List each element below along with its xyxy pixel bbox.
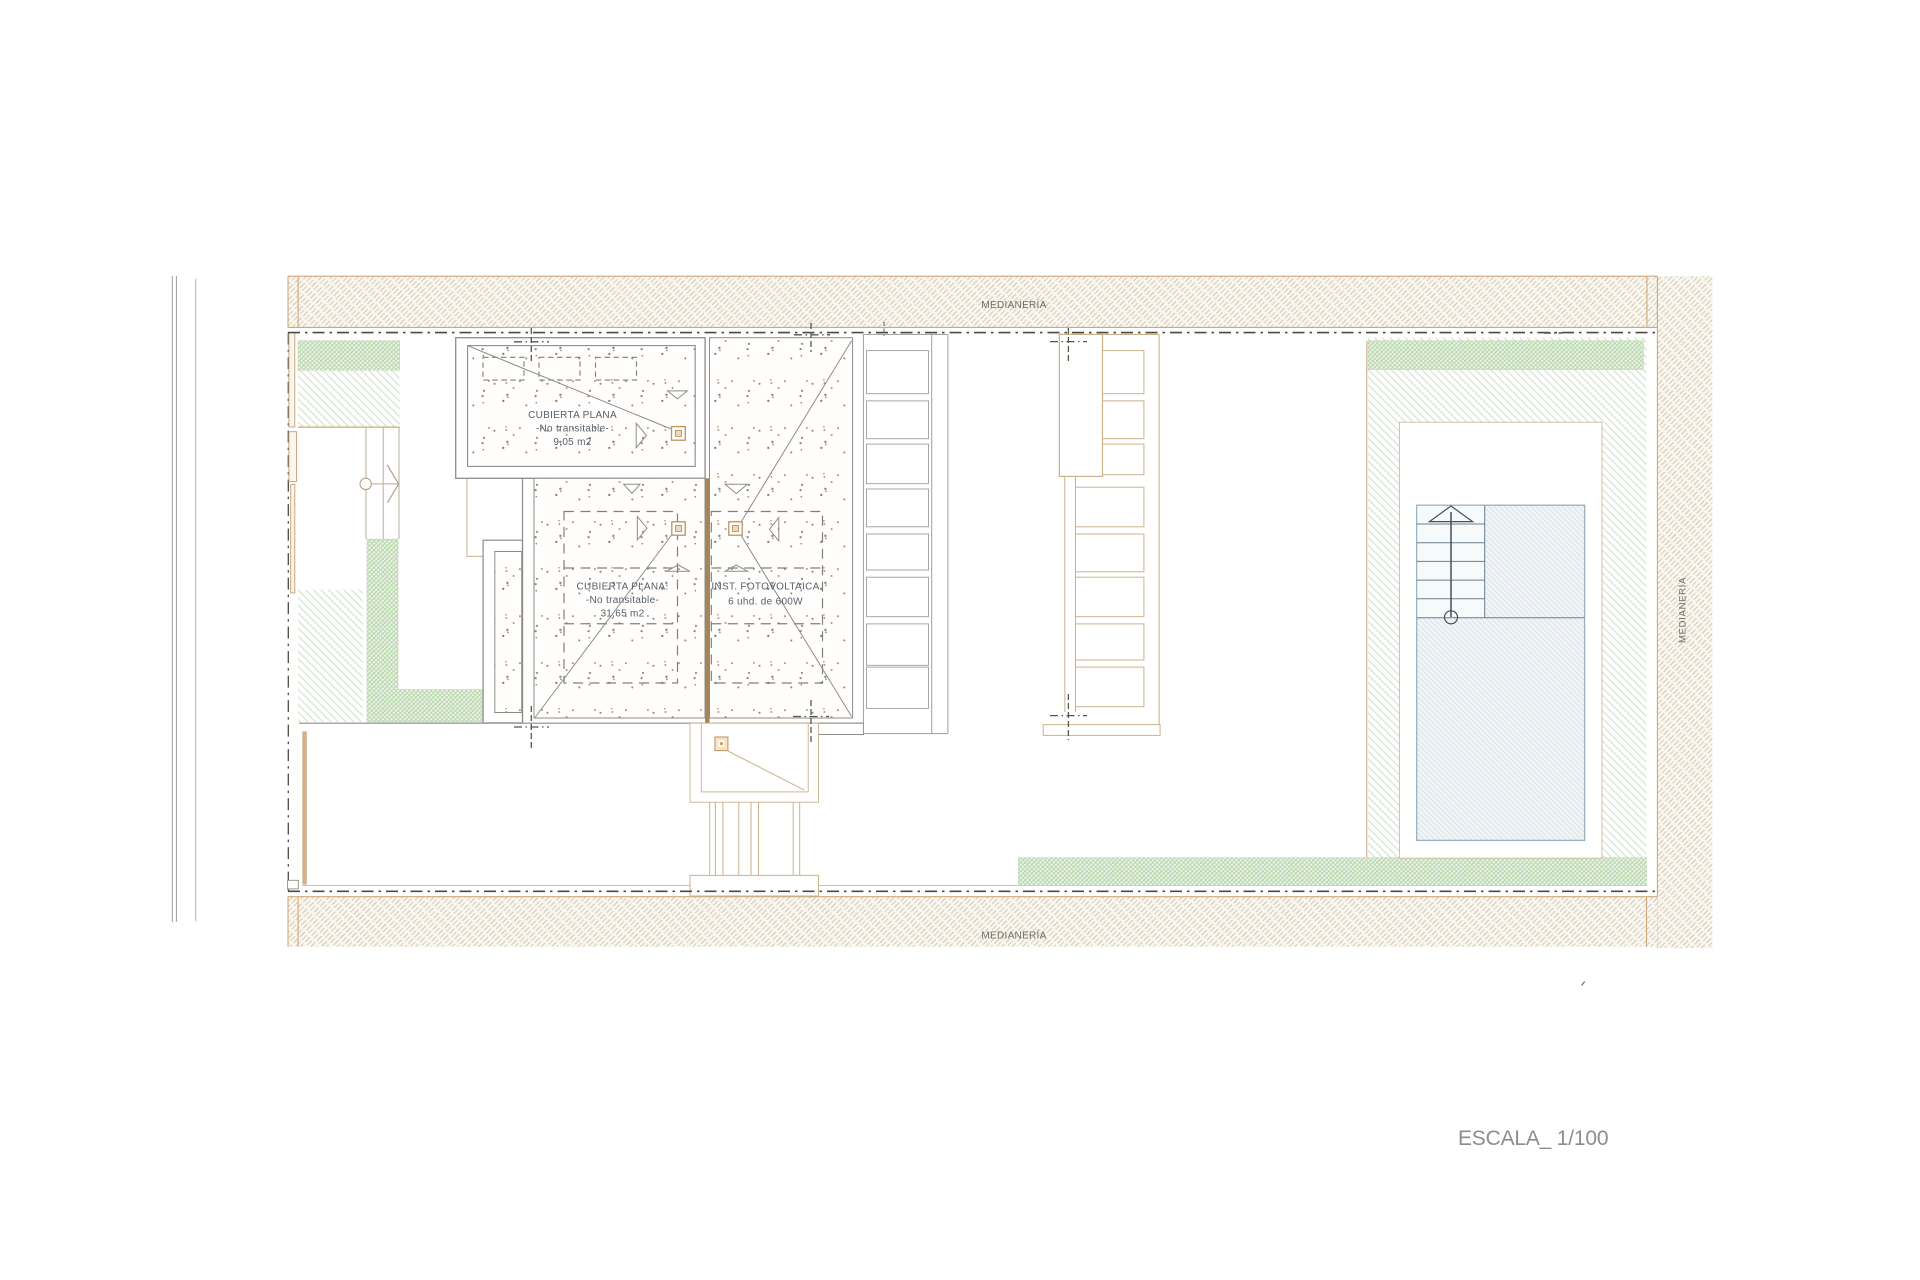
svg-text:MEDIANERÍA: MEDIANERÍA bbox=[1678, 577, 1689, 643]
svg-text:CUBIERTA PLANA: CUBIERTA PLANA bbox=[528, 410, 617, 421]
svg-text:MEDIANERÍA: MEDIANERÍA bbox=[981, 298, 1046, 311]
svg-text:6 uhd. de 600W: 6 uhd. de 600W bbox=[728, 597, 803, 608]
svg-text:MEDIANERÍA: MEDIANERÍA bbox=[981, 929, 1046, 942]
svg-text:9,05 m2: 9,05 m2 bbox=[553, 437, 591, 448]
svg-text:CUBIERTA PLANA.: CUBIERTA PLANA. bbox=[577, 582, 669, 593]
svg-text:ESCALA_ 1/100: ESCALA_ 1/100 bbox=[1458, 1127, 1608, 1150]
svg-text:INST. FOTOVOLTAICA: INST. FOTOVOLTAICA bbox=[711, 582, 819, 593]
svg-text:-No transitable-: -No transitable- bbox=[536, 424, 609, 435]
svg-text:-No transitable-: -No transitable- bbox=[586, 595, 659, 606]
svg-text:31,65 m2: 31,65 m2 bbox=[600, 609, 644, 620]
